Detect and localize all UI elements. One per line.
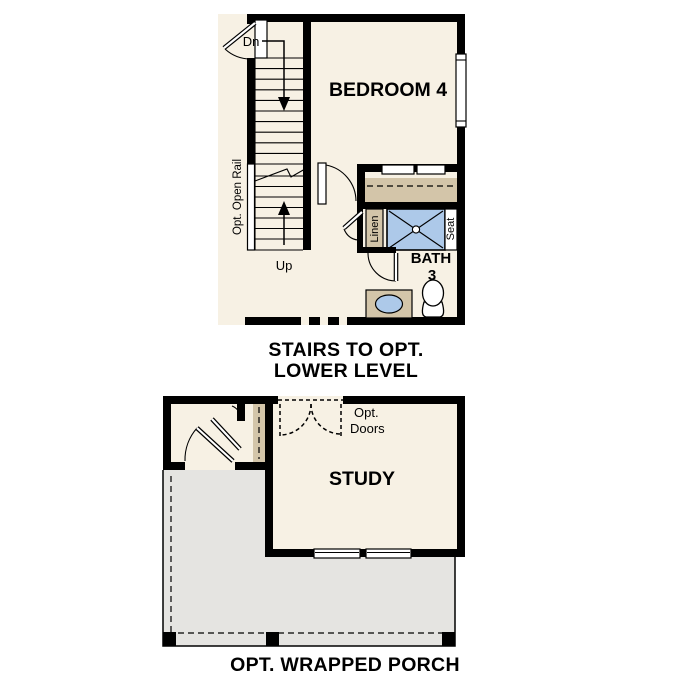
bedroom4-label: BEDROOM 4 bbox=[329, 79, 447, 101]
lower-top-wall-right bbox=[343, 396, 465, 404]
open-rail bbox=[248, 164, 255, 250]
toilet bbox=[422, 280, 443, 317]
opt-open-rail-label: Opt. Open Rail bbox=[232, 159, 244, 235]
linen-label: Linen bbox=[369, 216, 381, 243]
entry-closet bbox=[253, 404, 265, 462]
bath-wall-stub bbox=[357, 247, 396, 253]
closet-door-markers bbox=[382, 165, 445, 174]
lower-top-wall-left bbox=[163, 396, 278, 404]
study-right-wall bbox=[457, 396, 465, 557]
upper-floorplan: BEDROOM 4 Dn Up Opt. Open Rail Linen Sea… bbox=[218, 14, 466, 382]
stair-right-wall bbox=[303, 14, 311, 250]
porch-caption: OPT. WRAPPED PORCH bbox=[230, 654, 460, 676]
entry-bottom-wall-left bbox=[163, 462, 185, 470]
closet-upper bbox=[365, 178, 457, 202]
seat-label: Seat bbox=[445, 218, 457, 241]
bedroom-window bbox=[456, 54, 466, 127]
opt-doors-label-line2: Doors bbox=[350, 421, 385, 436]
bath-label: BATH bbox=[411, 250, 452, 267]
opt-doors-label-line1: Opt. bbox=[354, 405, 379, 420]
floorplan-svg: BEDROOM 4 Dn Up Opt. Open Rail Linen Sea… bbox=[0, 0, 687, 687]
upper-bottom-wall-left bbox=[245, 317, 290, 325]
bath-number: 3 bbox=[428, 267, 436, 284]
up-label: Up bbox=[276, 258, 293, 273]
lower-floorplan: STUDY Opt. Doors OPT. WRAPPED PORCH bbox=[163, 396, 465, 676]
study-label: STUDY bbox=[329, 468, 395, 490]
hall-right-wall bbox=[357, 202, 363, 253]
vanity-sink bbox=[366, 290, 412, 318]
study-bottom-wall bbox=[265, 549, 465, 557]
dn-label: Dn bbox=[243, 34, 260, 49]
upper-caption-line2: LOWER LEVEL bbox=[274, 360, 418, 382]
closet-bottom-wall bbox=[357, 202, 465, 209]
upper-top-wall bbox=[247, 14, 465, 22]
upper-caption-line1: STAIRS TO OPT. bbox=[268, 339, 423, 361]
shower bbox=[387, 209, 445, 250]
stair-left-wall bbox=[247, 58, 255, 164]
entry-left-wall bbox=[163, 396, 171, 470]
floorplan-page: BEDROOM 4 Dn Up Opt. Open Rail Linen Sea… bbox=[0, 0, 687, 687]
study-left-wall bbox=[265, 396, 273, 557]
